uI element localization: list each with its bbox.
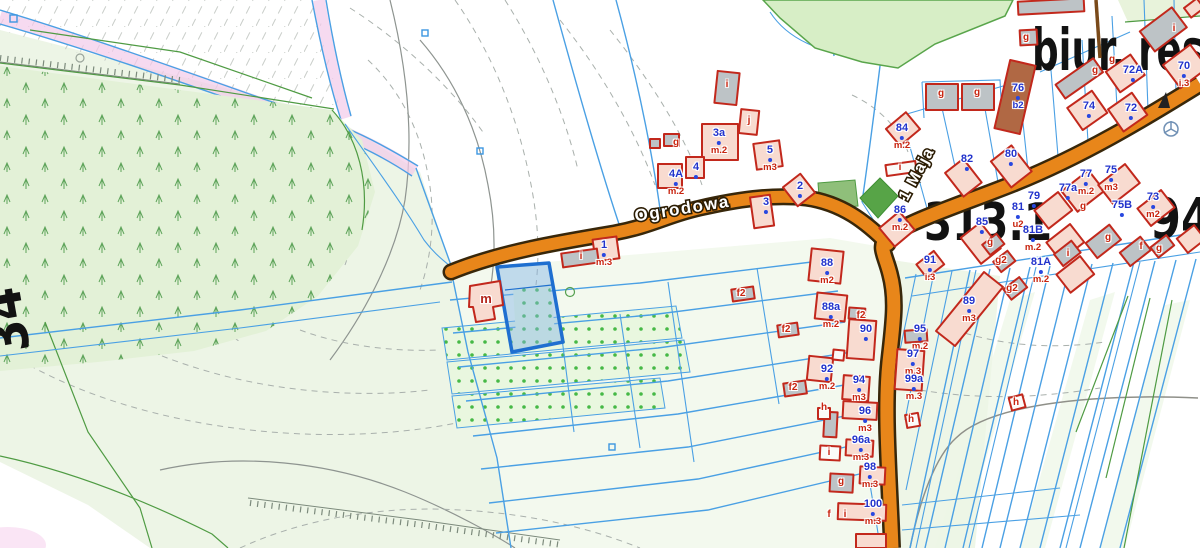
survey-marker-icon [422, 30, 428, 36]
map-viewport[interactable]: biur. res 313.1 94 34 [0, 0, 1200, 548]
map-canvas[interactable]: biur. res 313.1 94 34 [0, 0, 1200, 548]
roundabout-symbol [1164, 121, 1178, 136]
